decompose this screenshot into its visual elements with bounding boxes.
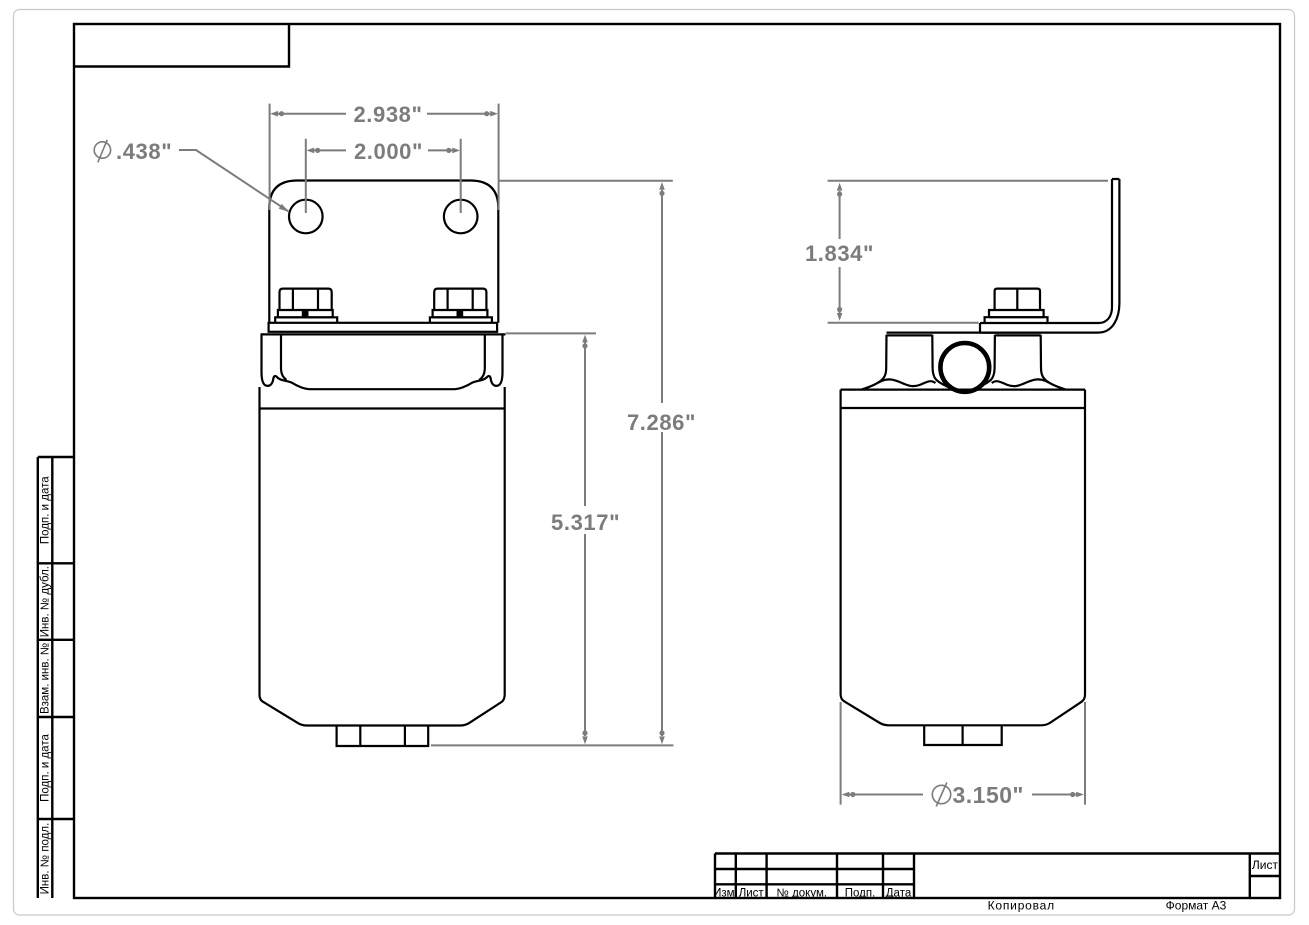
svg-text:7.286": 7.286"	[627, 410, 696, 435]
svg-text:5.317": 5.317"	[551, 510, 620, 535]
svg-text:1.834": 1.834"	[805, 241, 874, 266]
svg-text:2.938": 2.938"	[353, 102, 422, 127]
svg-text:Подп. и дата: Подп. и дата	[39, 476, 51, 544]
svg-text:№ докум.: № докум.	[777, 887, 828, 899]
svg-text:Формат А3: Формат А3	[1166, 898, 1227, 912]
svg-text:Лист: Лист	[739, 887, 765, 899]
svg-text:Изм.: Изм.	[713, 887, 738, 899]
svg-text:Дата: Дата	[886, 887, 912, 899]
svg-text:Копировал: Копировал	[988, 898, 1055, 912]
svg-text:Инв. № подл.: Инв. № подл.	[39, 823, 51, 895]
svg-text:3.150": 3.150"	[953, 782, 1024, 808]
svg-text:2.000": 2.000"	[354, 139, 423, 164]
svg-text:Подп.: Подп.	[845, 887, 876, 899]
svg-text:Лист: Лист	[1252, 858, 1279, 872]
svg-text:Инв. № дубл.: Инв. № дубл.	[39, 566, 51, 637]
svg-text:.438": .438"	[116, 139, 172, 164]
svg-text:Взам. инв. №: Взам. инв. №	[39, 643, 51, 714]
svg-text:Подп. и дата: Подп. и дата	[39, 734, 51, 802]
